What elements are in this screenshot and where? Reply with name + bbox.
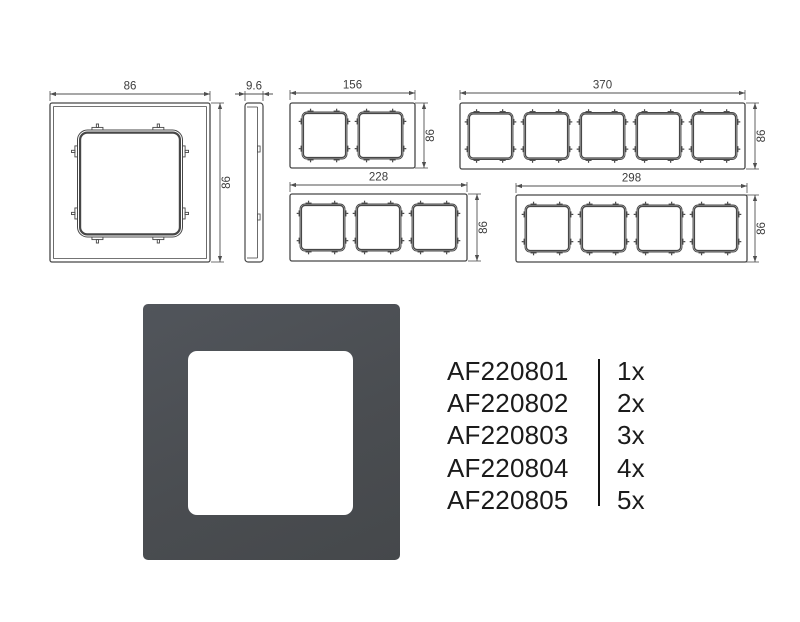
drawing-4gang-front-view: 29886: [516, 173, 768, 263]
product-row: AF220805 5x: [447, 485, 687, 517]
product-code: AF220805: [447, 485, 599, 516]
technical-drawings: 86869.615686370862288629886: [0, 0, 800, 295]
product-row: AF220804 4x: [447, 452, 687, 484]
product-qty: 3x: [617, 420, 645, 451]
drawing-2gang-front-view: 15686: [290, 80, 437, 169]
dimension-label: 86: [756, 130, 768, 143]
product-qty: 5x: [617, 485, 645, 516]
product-qty: 1x: [617, 356, 645, 387]
product-photo-window: [188, 351, 353, 515]
drawing-side-view: 9.6: [235, 81, 273, 263]
dimension-label: 9.6: [246, 81, 262, 93]
product-code: AF220802: [447, 388, 599, 419]
product-row: AF220801 1x: [447, 355, 687, 387]
dimension-label: 298: [622, 173, 641, 185]
dimension-label: 86: [425, 129, 437, 142]
product-qty: 4x: [617, 453, 645, 484]
dimension-label: 228: [369, 172, 388, 184]
product-row: AF220802 2x: [447, 387, 687, 419]
product-photo-frame: [143, 304, 400, 560]
product-code: AF220801: [447, 356, 599, 387]
product-list-divider: [598, 359, 600, 506]
product-row: AF220803 3x: [447, 420, 687, 452]
dimension-label: 370: [593, 80, 612, 92]
dimension-label: 86: [221, 176, 233, 189]
drawing-5gang-front-view: 37086: [460, 80, 768, 170]
product-qty: 2x: [617, 388, 645, 419]
dimension-label: 156: [343, 80, 362, 92]
dimension-label: 86: [124, 81, 137, 93]
drawing-3gang-front-view: 22886: [290, 172, 490, 262]
product-code: AF220804: [447, 453, 599, 484]
product-sheet-page: 86869.615686370862288629886 AF220801 1x …: [0, 0, 800, 622]
product-code: AF220803: [447, 420, 599, 451]
product-list: AF220801 1x AF220802 2x AF220803 3x AF22…: [447, 355, 687, 518]
dimension-label: 86: [756, 222, 768, 235]
dimension-label: 86: [478, 221, 490, 234]
drawing-1gang-front-view: 8686: [50, 81, 233, 263]
